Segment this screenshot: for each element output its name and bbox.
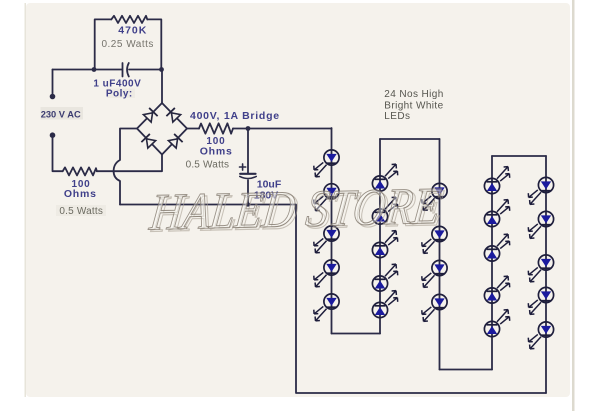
svg-text:400V, 1A Bridge: 400V, 1A Bridge bbox=[190, 110, 280, 122]
svg-text:0.5 Watts: 0.5 Watts bbox=[59, 206, 103, 217]
svg-text:LEDs: LEDs bbox=[384, 111, 410, 122]
svg-text:HALED STORE: HALED STORE bbox=[146, 177, 444, 241]
svg-text:Ohms: Ohms bbox=[64, 188, 97, 200]
svg-text:470K: 470K bbox=[118, 25, 147, 37]
svg-text:Ohms: Ohms bbox=[200, 146, 233, 158]
svg-text:230 V AC: 230 V AC bbox=[41, 109, 81, 119]
svg-text:24 Nos High: 24 Nos High bbox=[384, 89, 443, 100]
svg-text:0.5 Watts: 0.5 Watts bbox=[186, 160, 230, 171]
svg-text:0.25 Watts: 0.25 Watts bbox=[101, 39, 153, 50]
svg-text:Poly:: Poly: bbox=[106, 88, 133, 99]
